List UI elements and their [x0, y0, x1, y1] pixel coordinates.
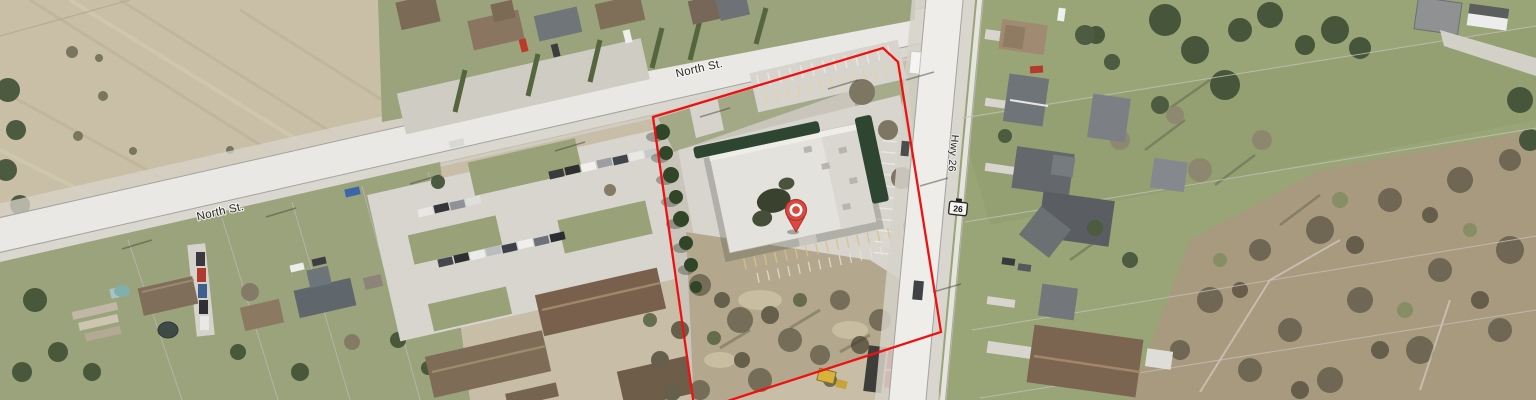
hwy-26-shield-number: 26 [953, 203, 964, 214]
map-canvas[interactable]: North St. North St. Hwy 26 26 [0, 0, 1536, 400]
aerial-map-view[interactable]: North St. North St. Hwy 26 26 [0, 0, 1536, 400]
